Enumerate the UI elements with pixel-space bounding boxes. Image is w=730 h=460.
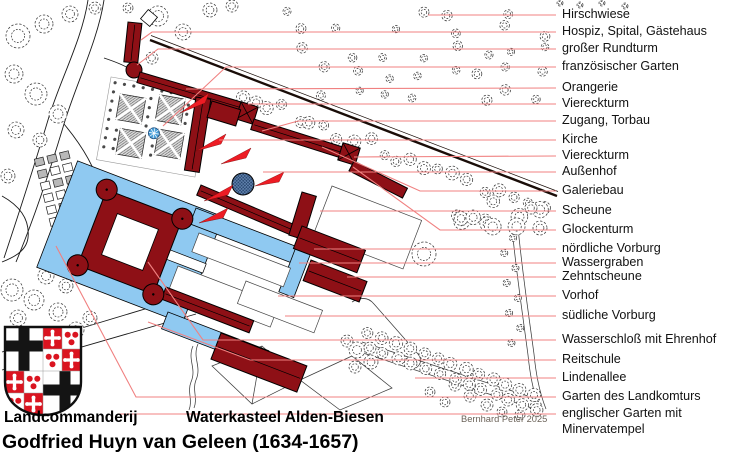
tree-icon xyxy=(422,56,426,60)
tree-icon xyxy=(39,19,49,29)
tree-icon xyxy=(543,45,547,49)
legend-label: Scheune xyxy=(562,203,612,219)
legend-label: Lindenallee xyxy=(562,370,626,386)
tree-icon xyxy=(542,34,547,39)
tree-icon xyxy=(9,69,19,79)
tree-icon xyxy=(519,401,526,408)
tree-icon xyxy=(393,158,399,164)
legend-label: Glockenturm xyxy=(562,222,633,238)
court-round-feature xyxy=(232,173,254,195)
tree-icon xyxy=(457,215,465,223)
tree-icon xyxy=(509,341,513,345)
tree-icon xyxy=(477,386,484,393)
legend-label: Hirschwiese xyxy=(562,7,630,23)
caption-landcommanderij: Landcommanderij xyxy=(4,409,138,427)
southeast-wing xyxy=(349,161,407,198)
legend-label: südliche Vorburg xyxy=(562,308,656,324)
legend-label: Viereckturm xyxy=(562,96,629,112)
tree-icon xyxy=(469,213,477,221)
tree-icon xyxy=(511,236,515,240)
tree-icon xyxy=(206,6,214,14)
tree-icon xyxy=(449,169,457,177)
tree-icon xyxy=(36,136,44,144)
tree-icon xyxy=(474,71,479,76)
tree-icon xyxy=(407,360,414,367)
tree-icon xyxy=(516,386,523,393)
tree-icon xyxy=(392,340,399,347)
tree-icon xyxy=(435,356,442,363)
tree-icon xyxy=(333,136,339,142)
tree-icon xyxy=(600,1,603,4)
tree-icon xyxy=(4,172,12,180)
tree-icon xyxy=(379,350,385,356)
tree-icon xyxy=(333,26,338,31)
garden-bed xyxy=(62,163,73,173)
tree-icon xyxy=(352,364,359,371)
tree-icon xyxy=(395,355,402,362)
legend-label: Orangerie xyxy=(562,80,618,96)
garden-bed xyxy=(46,205,57,215)
tree-icon xyxy=(358,89,362,93)
tree-icon xyxy=(444,13,450,19)
tree-icon xyxy=(368,135,375,142)
tree-icon xyxy=(422,350,428,356)
tree-icon xyxy=(454,68,458,72)
tree-icon xyxy=(351,138,358,145)
tree-icon xyxy=(285,9,289,13)
tree-icon xyxy=(455,43,460,48)
tree-icon xyxy=(14,314,23,323)
leader-line xyxy=(141,32,556,40)
tree-icon xyxy=(344,338,351,345)
tree-icon xyxy=(506,12,511,17)
tree-icon xyxy=(53,109,63,119)
alden-biesen-site-plan-page: HirschwieseHospiz, Spital, Gästehausgroß… xyxy=(0,0,730,460)
tree-icon xyxy=(356,68,361,73)
tree-icon xyxy=(516,296,520,300)
legend-label: Außenhof xyxy=(562,164,617,180)
tree-icon xyxy=(422,365,429,372)
tree-icon xyxy=(378,335,385,342)
tree-icon xyxy=(507,311,511,315)
coat-of-arms xyxy=(5,327,81,415)
legend-label: großer Rundturm xyxy=(562,41,658,57)
tree-icon xyxy=(53,307,63,317)
hospiz-building xyxy=(124,22,142,63)
legend-label: Wasserschloß mit Ehrenhof xyxy=(562,332,716,348)
tree-icon xyxy=(305,119,312,126)
tree-icon xyxy=(463,176,470,183)
tree-icon xyxy=(511,194,517,200)
tree-icon xyxy=(490,198,497,205)
tree-icon xyxy=(533,407,540,414)
legend-label: Kirche xyxy=(562,132,598,148)
garden-bed xyxy=(47,154,58,164)
leader-line xyxy=(137,49,556,65)
tree-icon xyxy=(467,393,474,400)
legend-label: Viereckturm xyxy=(562,148,629,164)
parterre xyxy=(116,128,146,158)
tree-icon xyxy=(350,55,355,60)
legend-label: Zehntscheune xyxy=(562,269,642,285)
tree-icon xyxy=(496,187,503,194)
tree-icon xyxy=(540,69,545,74)
tree-icon xyxy=(415,74,419,78)
tree-icon xyxy=(437,371,443,377)
tree-icon xyxy=(466,381,473,388)
tree-icon xyxy=(536,224,544,232)
legend-label: Vorhof xyxy=(562,288,598,304)
legend-label: Hospiz, Spital, Gästehaus xyxy=(562,24,707,40)
tree-icon xyxy=(505,281,509,285)
tree-icon xyxy=(42,272,51,281)
tree-icon xyxy=(487,53,492,58)
garden-bed xyxy=(53,178,64,188)
tree-icon xyxy=(509,50,513,54)
garden-bed xyxy=(37,169,48,179)
legend-label: Reitschule xyxy=(562,352,621,368)
garden-bed xyxy=(43,193,54,203)
tree-icon xyxy=(125,5,131,11)
page-title: Godfried Huyn van Geleen (1634-1657) xyxy=(2,431,359,454)
tree-icon xyxy=(513,266,517,270)
garden-bed xyxy=(34,157,45,167)
tree-icon xyxy=(263,104,270,111)
tree-icon xyxy=(364,330,370,336)
parterre xyxy=(116,94,146,124)
tree-icon xyxy=(380,55,384,59)
tree-icon xyxy=(476,371,482,377)
tree-icon xyxy=(534,97,539,102)
tree-icon xyxy=(558,1,561,4)
tree-icon xyxy=(353,346,362,355)
tree-icon xyxy=(12,126,21,135)
tree-icon xyxy=(490,376,497,383)
tree-icon xyxy=(452,376,458,382)
tree-icon xyxy=(253,99,260,106)
tree-icon xyxy=(502,23,507,28)
legend-label: englischer Garten mit Minervatempel xyxy=(562,406,682,437)
legend-label: Zugang, Torbau xyxy=(562,113,650,129)
garden-bed xyxy=(59,151,70,161)
tree-icon xyxy=(463,365,470,372)
tree-icon xyxy=(6,284,18,296)
tree-icon xyxy=(66,10,75,19)
tree-icon xyxy=(528,205,535,212)
south-bailey-southeast-block xyxy=(211,333,307,392)
tree-icon xyxy=(11,29,24,42)
tree-icon xyxy=(299,45,305,51)
tree-icon xyxy=(407,345,414,352)
tree-icon xyxy=(421,9,427,15)
garden-bed xyxy=(40,181,51,191)
tree-icon xyxy=(447,360,454,367)
tree-icon xyxy=(502,381,509,388)
legend-label: Garten des Landkomturs xyxy=(562,389,701,405)
tree-icon xyxy=(388,77,392,81)
tree-icon xyxy=(383,92,387,96)
tree-icon xyxy=(298,26,304,32)
legend-label: französischer Garten xyxy=(562,59,679,75)
tree-icon xyxy=(484,402,491,409)
tree-icon xyxy=(410,96,414,100)
tree-icon xyxy=(92,5,99,12)
tree-icon xyxy=(502,251,506,255)
legend-label: Galeriebau xyxy=(562,183,624,199)
tree-icon xyxy=(30,88,42,100)
author-credit: Bernhard Peter 2025 xyxy=(461,414,547,424)
tree-icon xyxy=(435,166,440,171)
tree-icon xyxy=(29,295,40,306)
garden-bed xyxy=(50,166,61,176)
tree-icon xyxy=(367,358,375,366)
tree-icon xyxy=(427,389,433,395)
tree-icon xyxy=(442,399,448,405)
tree-icon xyxy=(484,97,490,103)
caption-waterkasteel: Waterkasteel Alden-Biesen xyxy=(186,409,384,427)
tree-icon xyxy=(62,282,70,290)
tree-icon xyxy=(367,345,374,352)
tree-icon xyxy=(420,165,427,172)
tree-icon xyxy=(229,3,236,10)
tree-icon xyxy=(518,326,522,330)
tree-icon xyxy=(394,27,398,31)
tree-icon xyxy=(239,94,246,101)
tree-icon xyxy=(318,93,323,98)
tree-icon xyxy=(321,123,326,128)
